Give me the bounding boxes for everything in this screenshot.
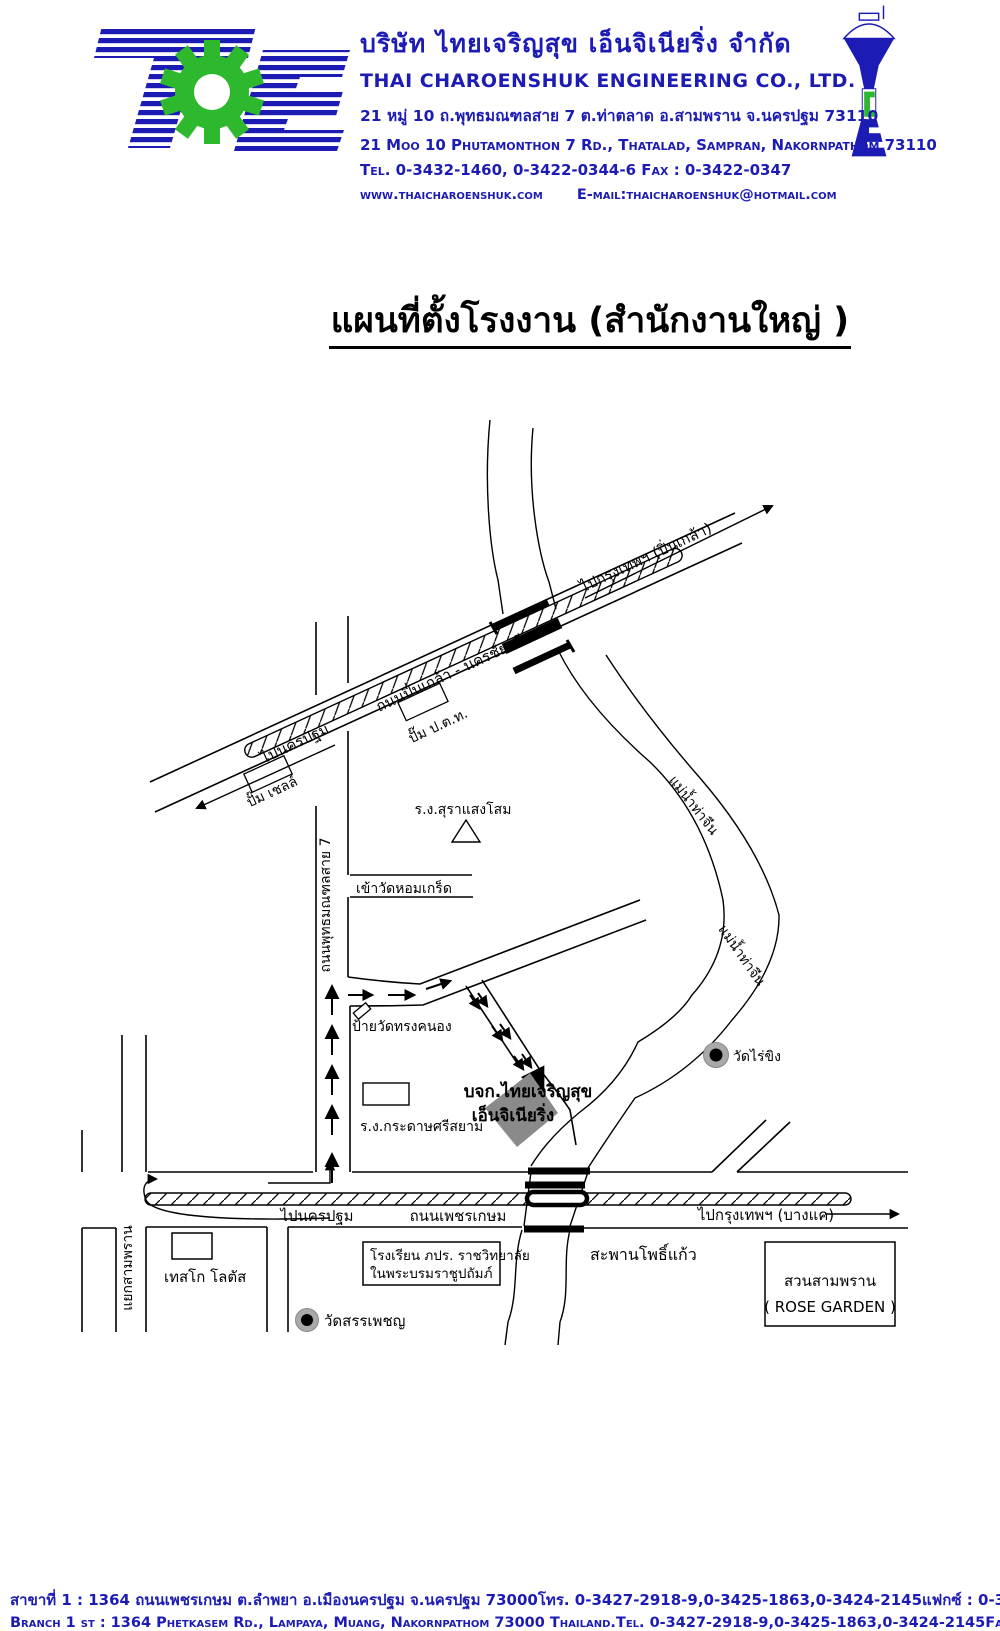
label-samphran-junction: แยกสามพราน	[120, 1225, 136, 1311]
label-company-2: เอ็นจิเนียริ่ง	[472, 1103, 554, 1126]
label-to-nakornpathom-phetkasem: ไปนครปฐม	[279, 1207, 353, 1225]
label-wat-raiking: วัดไร่ขิง	[733, 1048, 781, 1065]
sangsom-triangle-icon	[452, 820, 480, 842]
sangsom-factory: ร.ง.สุราแสงโสม	[415, 801, 512, 842]
wat-sanphet: วัดสรรเพชญ	[296, 1309, 406, 1332]
label-tesco: เทสโก โลตัส	[164, 1268, 246, 1286]
label-ptt-station: ปั๊ม ป.ต.ท.	[405, 703, 470, 747]
label-school-1: โรงเรียน ภปร. ราชวิทยาลัย	[370, 1247, 530, 1264]
songkanong-sign: ป้ายวัดทรงคนอง	[352, 1003, 452, 1035]
label-phokaew-bridge: สะพานโพธิ์แก้ว	[590, 1243, 697, 1264]
label-river-1: แม่น้ำท่าจีน	[665, 771, 724, 839]
road-wat-homkret: เข้าวัดหอมเกร็ด	[350, 875, 473, 897]
phokaew-bridge	[524, 1171, 590, 1229]
tesco-lotus: เทสโก โลตัส	[164, 1233, 246, 1286]
map-canvas: ไปกรุงเทพฯ (ปิ่นเกล้า) ถนนปิ่นเกล้า - นค…	[0, 0, 1000, 1629]
label-road-phetkasem: ถนนเพชรเกษม	[410, 1207, 507, 1225]
company-factory: บจก.ไทยเจริญสุข เอ็นจิเนียริ่ง	[464, 1073, 593, 1147]
label-road-sai7: ถนนพุทธมณฑลสาย 7	[318, 837, 334, 972]
label-to-bangkok-bangkae: ไปกรุงเทพฯ (บางแค)	[697, 1206, 834, 1225]
road-pinklao-nakhonchaisri: ไปกรุงเทพฯ (ปิ่นเกล้า) ถนนปิ่นเกล้า - นค…	[150, 506, 772, 812]
label-rose-garden-1: สวนสามพราน	[784, 1272, 876, 1290]
wat-raiking: วัดไร่ขิง	[704, 1043, 781, 1068]
label-school-2: ในพระบรมราชูปถัมภ์	[370, 1265, 493, 1282]
label-to-bangkok-pinklao: ไปกรุงเทพฯ (ปิ่นเกล้า)	[576, 517, 715, 597]
branch-tel-th: โทร. 0-3427-2918-9,0-3425-1863,0-3424-21…	[538, 1588, 922, 1612]
branch-footer: สาขาที่ 1 : 1364 ถนนเพชรเกษม ต.ลำพยา อ.เ…	[0, 1588, 1000, 1631]
branch-fax-th: แฟกซ์ : 0-3427-2919	[922, 1588, 1000, 1612]
label-road-pinklao: ถนนปิ่นเกล้า - นครชัยศรี	[372, 629, 526, 715]
label-company-1: บจก.ไทยเจริญสุข	[464, 1081, 593, 1102]
label-sangsom: ร.ง.สุราแสงโสม	[415, 801, 512, 818]
label-srisiam: ร.ง.กระดาษศรีสยาม	[360, 1119, 483, 1135]
label-wat-homkret: เข้าวัดหอมเกร็ด	[356, 879, 452, 897]
label-songkanong: ป้ายวัดทรงคนอง	[352, 1019, 452, 1035]
label-rose-garden-2: ( ROSE GARDEN )	[764, 1298, 896, 1316]
branch-address-th: สาขาที่ 1 : 1364 ถนนเพชรเกษม ต.ลำพยา อ.เ…	[10, 1588, 538, 1612]
label-river-2: แม่น้ำท่าจีน	[714, 921, 770, 990]
school-box: โรงเรียน ภปร. ราชวิทยาลัย ในพระบรมราชูปถ…	[363, 1242, 530, 1285]
rose-garden: สวนสามพราน ( ROSE GARDEN )	[764, 1242, 896, 1326]
label-wat-sanphet: วัดสรรเพชญ	[324, 1312, 405, 1330]
